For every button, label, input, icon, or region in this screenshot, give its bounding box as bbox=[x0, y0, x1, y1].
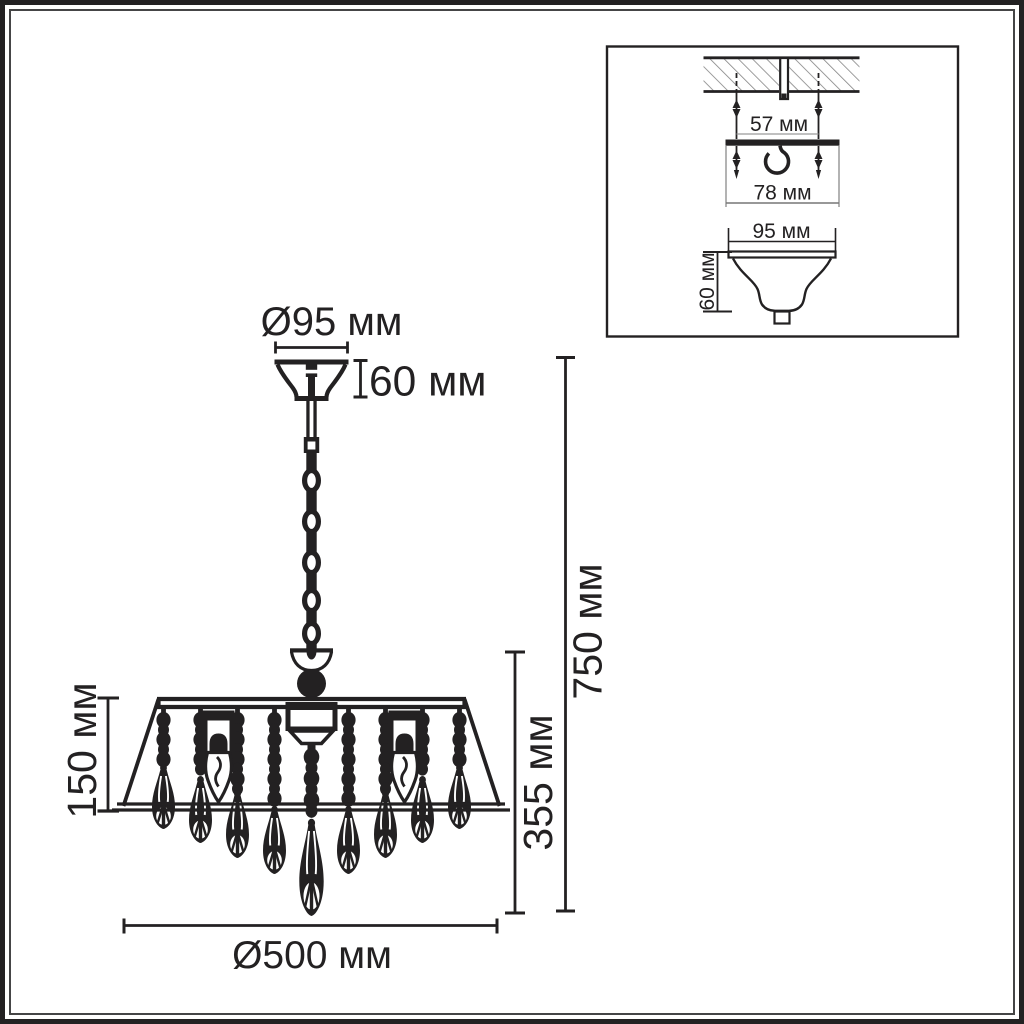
svg-text:60 мм: 60 мм bbox=[696, 252, 719, 310]
svg-text:95 мм: 95 мм bbox=[752, 220, 810, 243]
svg-text:60 мм: 60 мм bbox=[369, 359, 487, 406]
svg-text:150 мм: 150 мм bbox=[59, 682, 105, 818]
svg-text:Ø95 мм: Ø95 мм bbox=[261, 300, 403, 344]
svg-text:57 мм: 57 мм bbox=[750, 113, 808, 136]
svg-text:750 мм: 750 мм bbox=[565, 563, 611, 699]
svg-text:78 мм: 78 мм bbox=[753, 182, 811, 205]
svg-text:Ø500 мм: Ø500 мм bbox=[232, 934, 392, 977]
svg-text:355 мм: 355 мм bbox=[515, 714, 561, 850]
